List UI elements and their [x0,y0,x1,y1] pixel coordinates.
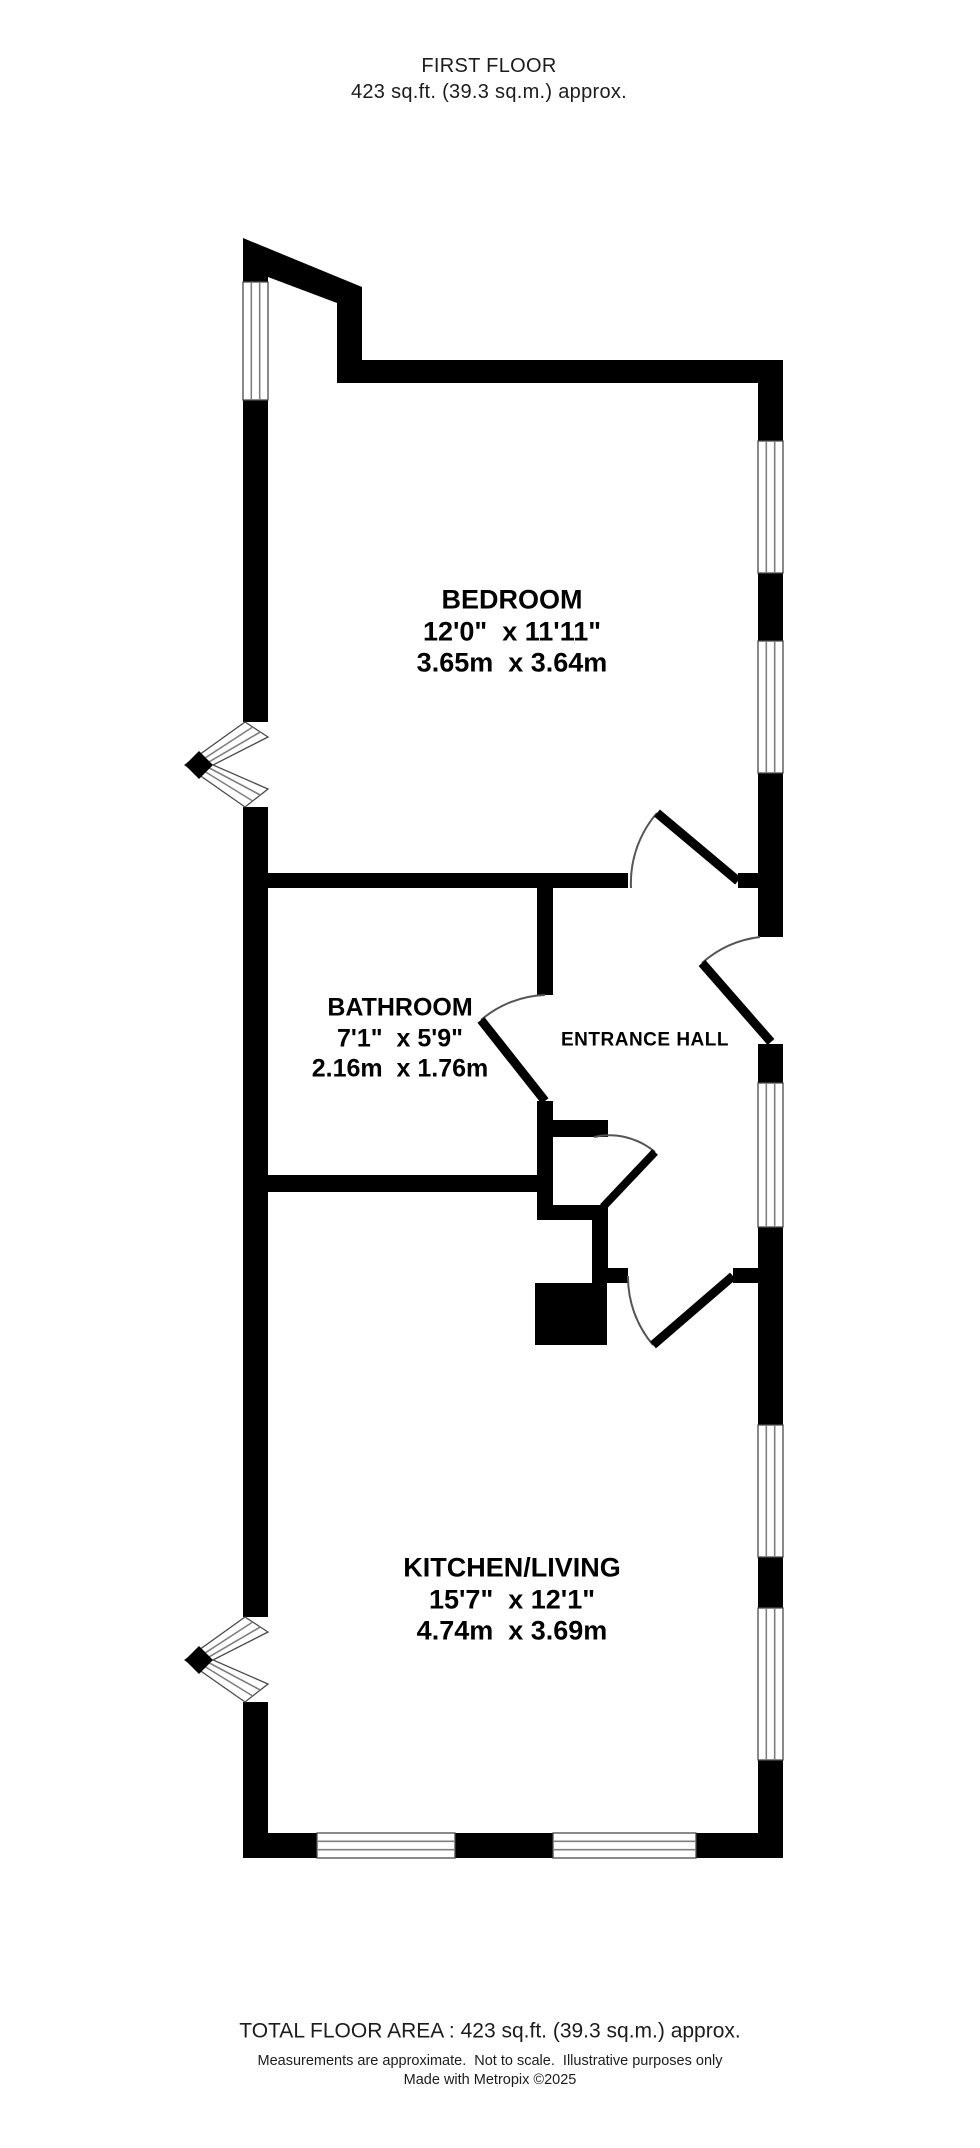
wall-right-2 [758,573,783,641]
window-kitchen-right-2 [758,1608,783,1760]
wall-bottom-3 [696,1833,783,1858]
room-dims-bathroom-m: 2.16m x 1.76m [312,1057,489,1082]
room-dims-kitchen-ft: 15'7" x 12'1" [429,1587,595,1614]
wall-kitchen-door-stub-right [733,1268,758,1283]
wall-top [337,360,783,383]
door-bathroom [481,995,545,1101]
door-arc [702,937,760,963]
room-dims-bathroom-ft: 7'1" x 5'9" [337,1027,463,1052]
bay-window-kitchen [185,1617,268,1702]
wall-right-5 [758,1227,783,1425]
wall-bathroom-bottom [243,1175,553,1192]
disclaimer-text: Measurements are approximate. Not to sca… [257,2054,722,2069]
door-arc [481,995,545,1020]
wall-cupboard-top-stub [553,1120,608,1137]
wall-bottom-2 [455,1833,553,1858]
window-bedroom-right-2 [758,641,783,773]
room-label-kitchen-living: KITCHEN/LIVING [403,1555,621,1582]
door-leaf [603,1152,655,1207]
wall-right-4 [758,1044,783,1083]
door-arc [631,813,657,888]
wall-right-1 [758,383,783,441]
window-bedroom-right-1 [758,441,783,573]
wall-right-3 [758,773,783,937]
door-leaf [657,813,738,881]
door-leaf [653,1276,733,1345]
door-arc [628,1276,653,1345]
room-dims-bedroom-m: 3.65m x 3.64m [417,650,608,677]
window-kitchen-bottom-1 [317,1833,455,1858]
wall-left-2 [243,807,268,1617]
wall-kitchen-door-stub-left [608,1268,628,1283]
door-bedroom [631,813,738,888]
room-dims-bedroom-ft: 12'0" x 11'11" [423,619,601,646]
window-hall-right [758,1083,783,1227]
wall-bathroom-right-upper [537,888,553,995]
total-floor-area: TOTAL FLOOR AREA : 423 sq.ft. (39.3 sq.m… [239,2021,740,2042]
window-bedroom-left [243,282,268,400]
floorplan-page: FIRST FLOOR 423 sq.ft. (39.3 sq.m.) appr… [0,0,980,2148]
door-hall-cupboard [594,1135,655,1207]
door-arc [594,1135,655,1152]
floor-title: FIRST FLOOR [421,56,556,76]
wall-right-6 [758,1557,783,1608]
wall-left-1 [243,400,268,722]
door-front-entrance [702,937,771,1042]
wall-bathroom-right-lower [537,1101,553,1220]
bay-window-bedroom [185,722,268,807]
window-kitchen-bottom-2 [553,1833,696,1858]
floor-plan-drawing [0,0,980,2148]
door-kitchen [628,1276,733,1345]
room-label-bathroom: BATHROOM [327,996,472,1021]
room-label-bedroom: BEDROOM [442,587,583,614]
window-kitchen-right-1 [758,1425,783,1557]
wall-cupboard-right [592,1205,608,1283]
wall-bottom-1 [243,1833,317,1858]
door-leaf [481,1020,545,1101]
room-label-entrance-hall: ENTRANCE HALL [561,1031,729,1050]
wall-bedroom-divider [243,873,628,888]
wall-cupboard-bottom [537,1205,594,1220]
floor-area-label: 423 sq.ft. (39.3 sq.m.) approx. [351,82,627,102]
wall-pillar-block [535,1283,607,1345]
wall-bedroom-door-stub [738,873,758,888]
room-dims-kitchen-m: 4.74m x 3.69m [417,1618,608,1645]
doors [481,813,771,1345]
metropix-credit: Made with Metropix ©2025 [404,2073,577,2088]
